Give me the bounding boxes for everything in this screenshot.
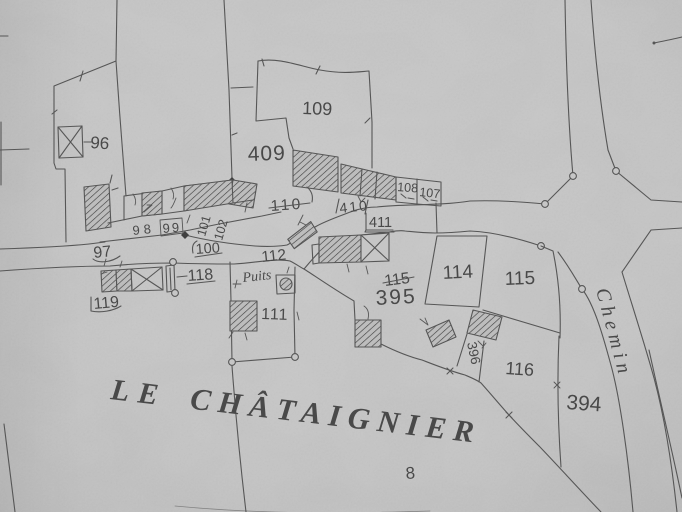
svg-text:107: 107 [419,185,441,201]
svg-text:395: 395 [375,285,417,310]
svg-text:115: 115 [504,268,535,290]
svg-text:411: 411 [369,215,392,231]
svg-text:394: 394 [566,391,603,416]
svg-text:LE: LE [108,373,169,413]
svg-text:116: 116 [505,358,535,380]
svg-text:119: 119 [93,294,120,313]
svg-text:409: 409 [247,142,286,166]
svg-text:Puits: Puits [241,268,273,286]
svg-text:98: 98 [132,221,156,238]
svg-text:8: 8 [405,463,416,483]
svg-text:111: 111 [261,306,289,324]
svg-text:96: 96 [90,133,110,153]
svg-text:97: 97 [93,243,113,262]
svg-text:114: 114 [442,261,474,284]
svg-text:109: 109 [302,98,333,119]
svg-text:108: 108 [397,180,419,195]
svg-text:112: 112 [261,246,287,265]
